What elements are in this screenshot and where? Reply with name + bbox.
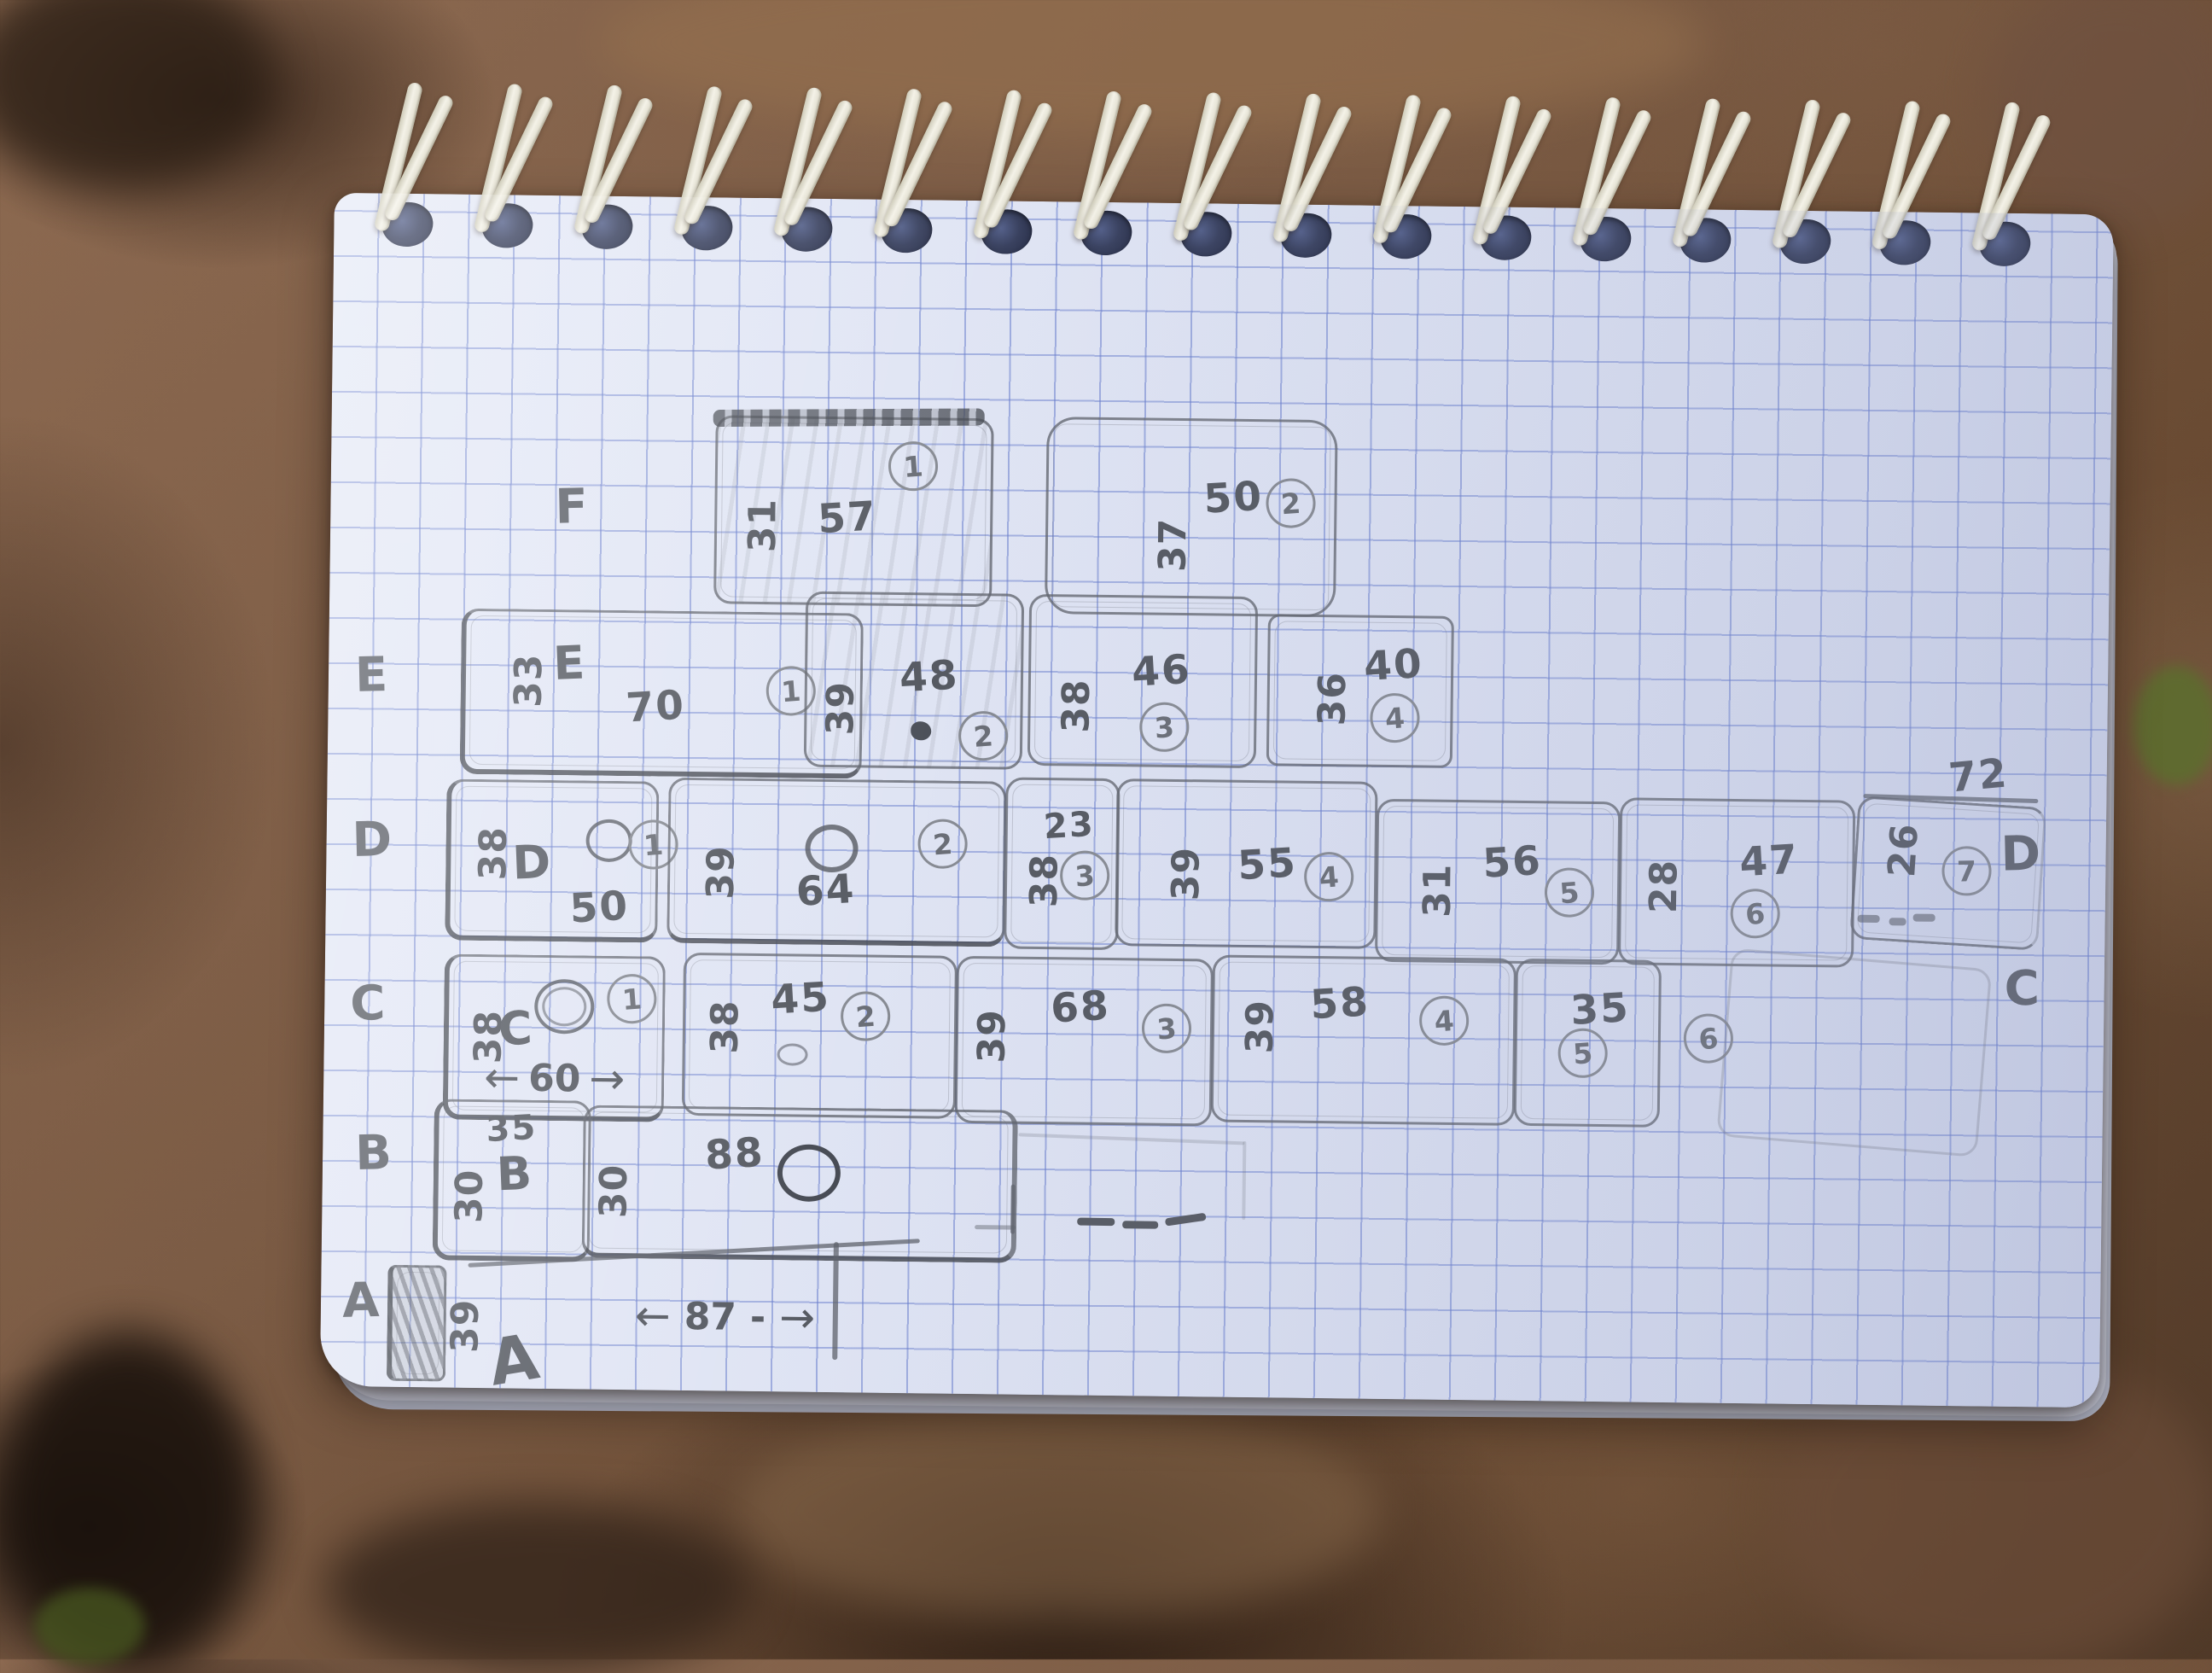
- stone-C1: 38 C 1 ← 60 →: [443, 953, 666, 1122]
- notebook-page: F E D C B A D C 31 57 1 37 50 2 33 E 70 …: [320, 193, 2114, 1408]
- stone-D6-main-dim: 47: [1738, 836, 1800, 886]
- stone-D3-top-dim: 23: [1043, 805, 1096, 847]
- stone-B2-main-dim: 88: [704, 1129, 765, 1180]
- leaf: [34, 1588, 145, 1664]
- dash-mark: [1913, 914, 1935, 922]
- stone-E3: 38 46 3: [1027, 594, 1258, 768]
- rock-dark-patch: [0, 0, 273, 188]
- stone-E2-seq: 2: [957, 709, 1010, 762]
- stone-A-sliver: [387, 1265, 447, 1382]
- stone-C5: 35 5: [1514, 959, 1662, 1128]
- stone-C3-seq: 3: [1140, 1002, 1193, 1055]
- stone-D4-side-dim: 39: [1164, 847, 1208, 901]
- stone-B2-side-dim: 30: [591, 1164, 636, 1219]
- row-label-F: F: [555, 479, 589, 535]
- stone-B1: 35 B 30: [433, 1099, 591, 1262]
- stone-C1-width-dim: ← 60 →: [484, 1052, 626, 1104]
- stone-D1-side-dim: 38: [471, 826, 515, 881]
- stone-C3-side-dim: 39: [970, 1009, 1015, 1064]
- spiral-coil: [1167, 94, 1251, 291]
- stone-D2-side-dim: 39: [699, 845, 743, 900]
- stone-C3: 39 68 3: [955, 956, 1214, 1127]
- stone-C6-faint-outline: [1716, 948, 1992, 1157]
- stone-D4-main-dim: 55: [1237, 839, 1298, 889]
- spiral-coil: [1666, 100, 1750, 297]
- stone-E1-side-dim: 33: [507, 653, 551, 708]
- stone-D5: 31 56 5: [1375, 799, 1621, 965]
- stone-C1-label: C: [498, 1001, 533, 1057]
- stone-D2-seq: 2: [917, 818, 969, 871]
- stone-E4-side-dim: 36: [1310, 672, 1354, 726]
- stone-E4-main-dim: 40: [1363, 640, 1424, 691]
- stone-E1-main-dim: 70: [625, 682, 686, 732]
- stone-C2-side-dim: 38: [703, 1000, 748, 1054]
- stone-F2: 37 50 2: [1045, 417, 1338, 617]
- pencil-ring: [534, 979, 595, 1035]
- stone-B1-label: B: [496, 1146, 533, 1202]
- row-label-C-right: C: [2004, 961, 2040, 1017]
- faint-line: [1242, 1141, 1246, 1220]
- pencil-blob: [911, 721, 931, 740]
- stone-C5-main-dim: 35: [1569, 984, 1631, 1035]
- stone-E4-seq: 4: [1368, 691, 1421, 744]
- stone-D5-seq: 5: [1543, 866, 1596, 919]
- dim-60: 60: [528, 1056, 581, 1100]
- spiral-coil: [967, 91, 1051, 289]
- stone-A-right-edge: [832, 1242, 839, 1360]
- row-label-D: D: [352, 812, 393, 868]
- spiral-coil: [767, 89, 852, 286]
- pencil-scribble: [713, 408, 985, 427]
- faint-line: [1018, 1133, 1244, 1145]
- photo-of-notebook-on-rock: { "labels": { "f": "F", "e": "E", "d": "…: [0, 0, 2212, 1659]
- row-label-C: C: [350, 976, 387, 1032]
- spiral-coil: [1566, 99, 1650, 296]
- stone-E2-main-dim: 48: [898, 651, 959, 702]
- dash-mark: [1077, 1218, 1115, 1227]
- leaf: [2133, 666, 2212, 785]
- stone-D7-seq: 7: [1941, 846, 1992, 896]
- stone-F2-seq: 2: [1264, 476, 1317, 529]
- stone-D1-main-dim: 50: [568, 883, 630, 933]
- stone-E2-side-dim: 39: [818, 681, 863, 736]
- row-label-E: E: [354, 647, 388, 703]
- spiral-coil: [568, 86, 652, 283]
- spiral-coil: [1266, 95, 1351, 292]
- arrow-left-icon: ←: [634, 1291, 671, 1341]
- arrow-right-icon: →: [589, 1054, 626, 1105]
- stone-C3-main-dim: 68: [1050, 982, 1111, 1033]
- stone-D4-seq: 4: [1302, 850, 1355, 903]
- dash-mark: [1165, 1213, 1207, 1227]
- stone-D1: 38 D 1 50: [445, 779, 659, 943]
- stone-D6-side-dim: 28: [1642, 860, 1686, 914]
- stone-E3-side-dim: 38: [1054, 679, 1098, 733]
- stone-C2: 38 45 2: [682, 953, 958, 1119]
- rock-dark-patch: [0, 1332, 256, 1673]
- stone-E3-main-dim: 46: [1131, 646, 1192, 697]
- stone-D3: 23 38 3: [1004, 778, 1120, 951]
- stone-D2-main-dim: 64: [795, 866, 856, 916]
- stone-D2: 39 64 2: [667, 778, 1006, 947]
- spiral-coil: [1067, 92, 1151, 289]
- row-label-B: B: [354, 1125, 392, 1181]
- stone-D7: 26 7: [1849, 796, 2046, 951]
- stone-C4: 39 58 4: [1211, 954, 1516, 1125]
- pencil-ring: [585, 819, 632, 863]
- pencil-ring: [777, 1144, 841, 1202]
- stone-E1: 33 E 70 1: [460, 609, 864, 779]
- stone-B1-top-dim: 35: [485, 1108, 538, 1150]
- stone-F2-side-dim: 37: [1151, 517, 1196, 572]
- stone-C4-seq: 4: [1417, 994, 1470, 1047]
- stone-B1-side-dim: 30: [447, 1169, 492, 1223]
- stone-F1-side-dim: 31: [741, 498, 785, 553]
- dim-72: 72: [1947, 749, 2010, 802]
- stone-F1-seq: 1: [887, 440, 940, 493]
- stone-E1-label: E: [552, 636, 585, 691]
- spiral-coil: [1866, 102, 1950, 300]
- arrow-left-icon: ←: [484, 1052, 521, 1103]
- dash-mark: [1889, 918, 1906, 925]
- spiral-coil: [667, 88, 752, 285]
- stone-D5-main-dim: 56: [1481, 837, 1543, 888]
- dash-mark: [1122, 1221, 1158, 1229]
- stone-C5-seq: 5: [1557, 1027, 1610, 1080]
- stone-B2: 30 88: [582, 1105, 1018, 1262]
- stone-D5-side-dim: 31: [1416, 863, 1460, 918]
- dash-mark: [1858, 915, 1880, 923]
- stone-D7-side-dim: 26: [1880, 822, 1927, 878]
- stone-C2-seq: 2: [839, 989, 892, 1042]
- spiral-coil: [1466, 97, 1551, 294]
- stone-E3-seq: 3: [1138, 701, 1190, 754]
- stone-D6-seq: 6: [1729, 887, 1782, 940]
- stone-F1-main-dim: 57: [817, 493, 878, 543]
- stone-E2: 39 48 2: [804, 592, 1024, 770]
- sketch-line: [975, 1225, 1016, 1230]
- stone-A-side-dim: 39: [443, 1298, 487, 1353]
- stone-D6: 28 47 6: [1618, 797, 1855, 967]
- dim-87: 87: [684, 1294, 736, 1338]
- spiral-coil: [1366, 96, 1451, 294]
- stone-D1-label: D: [511, 835, 551, 890]
- rock-dark-patch: [324, 1502, 751, 1673]
- spiral-coil: [368, 84, 452, 281]
- dim-dash: -: [750, 1295, 766, 1338]
- arrow-right-icon: →: [779, 1292, 816, 1343]
- spiral-coil: [1766, 101, 1850, 298]
- stone-D4: 39 55 4: [1115, 778, 1377, 949]
- row-label-A: A: [341, 1273, 380, 1329]
- stone-F1: 31 57 1: [713, 415, 994, 607]
- spiral-binding: [335, 193, 2114, 214]
- stone-C2-main-dim: 45: [770, 974, 831, 1024]
- stone-C4-main-dim: 58: [1309, 978, 1371, 1029]
- stone-C1-seq: 1: [605, 972, 658, 1025]
- spiral-coil: [1965, 103, 2050, 300]
- stone-F2-main-dim: 50: [1202, 473, 1264, 523]
- stone-C4-side-dim: 39: [1238, 1000, 1283, 1054]
- pencil-ring-small: [777, 1043, 807, 1065]
- stone-A-width-dim: ← 87 - →: [634, 1291, 815, 1343]
- spiral-coil: [867, 90, 952, 287]
- stone-E4: 36 40 4: [1266, 614, 1454, 768]
- spiral-coil: [468, 85, 552, 283]
- rock-light-patch: [734, 1400, 1382, 1622]
